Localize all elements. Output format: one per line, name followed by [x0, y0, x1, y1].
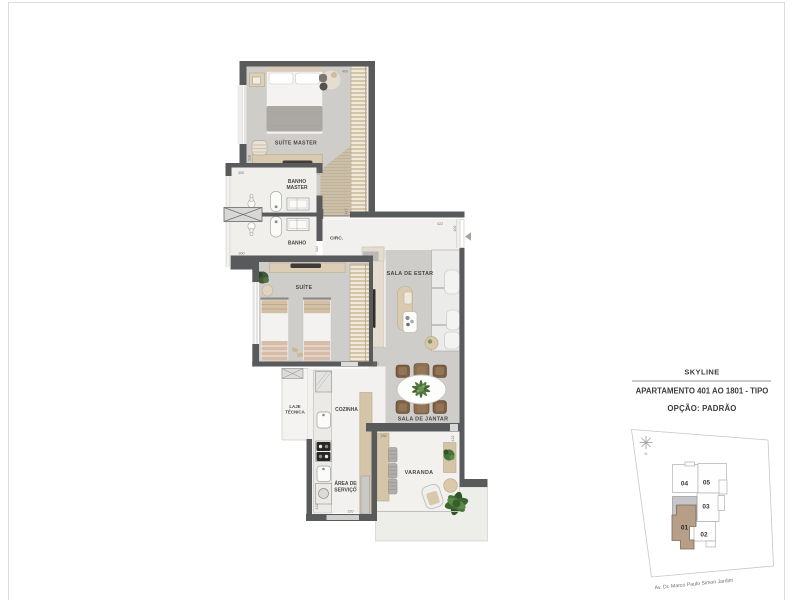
svg-text:400: 400 — [342, 70, 348, 74]
svg-text:144: 144 — [315, 246, 319, 252]
svg-text:MASTER: MASTER — [286, 185, 308, 191]
svg-text:SALA DE JANTAR: SALA DE JANTAR — [398, 417, 449, 423]
svg-text:363: 363 — [373, 362, 379, 366]
svg-text:402: 402 — [453, 226, 457, 232]
svg-text:COZINHA: COZINHA — [335, 407, 358, 413]
svg-text:04: 04 — [681, 481, 689, 488]
svg-text:VARANDA: VARANDA — [405, 470, 434, 476]
svg-text:318: 318 — [248, 155, 252, 161]
svg-text:CIRC.: CIRC. — [330, 236, 343, 242]
svg-text:300: 300 — [239, 252, 245, 256]
svg-text:417: 417 — [345, 209, 349, 215]
svg-text:220: 220 — [348, 510, 354, 514]
svg-text:422: 422 — [315, 504, 319, 510]
svg-text:APARTAMENTO 401 AO 1801 - TIPO: APARTAMENTO 401 AO 1801 - TIPO — [636, 387, 769, 396]
svg-text:05: 05 — [703, 480, 711, 487]
svg-text:LAJE: LAJE — [289, 404, 300, 409]
svg-text:TÉCNICA: TÉCNICA — [285, 410, 305, 415]
svg-text:422: 422 — [451, 436, 455, 442]
svg-text:SKYLINE: SKYLINE — [684, 368, 719, 377]
svg-text:211: 211 — [354, 482, 358, 488]
svg-text:N: N — [645, 451, 648, 456]
svg-text:OPÇÃO: PADRÃO: OPÇÃO: PADRÃO — [667, 404, 736, 413]
svg-text:SUÍTE: SUÍTE — [296, 283, 313, 291]
svg-text:288: 288 — [381, 434, 387, 438]
svg-text:01: 01 — [681, 525, 689, 532]
svg-text:300: 300 — [238, 171, 244, 175]
svg-text:144: 144 — [317, 169, 321, 175]
svg-text:SALA DE ESTAR: SALA DE ESTAR — [387, 271, 434, 277]
svg-text:422: 422 — [437, 222, 443, 226]
svg-text:BANHO: BANHO — [288, 241, 306, 247]
svg-text:03: 03 — [702, 504, 710, 511]
svg-text:SUÍTE MASTER: SUÍTE MASTER — [275, 139, 317, 147]
svg-text:02: 02 — [700, 532, 708, 539]
